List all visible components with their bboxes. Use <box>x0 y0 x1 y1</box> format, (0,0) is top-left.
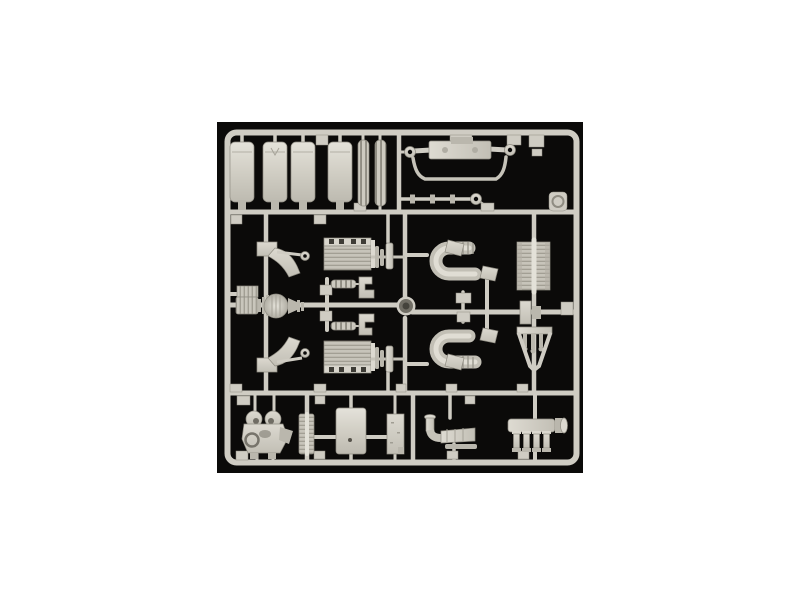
sprue-photo-canvas <box>217 122 583 473</box>
panel-plate <box>336 408 366 454</box>
side-plate <box>387 414 404 454</box>
product-photo-sprue <box>217 122 583 473</box>
ribbed-strip <box>299 414 314 454</box>
runner-hub-node <box>397 297 416 316</box>
radiator-core <box>517 240 550 292</box>
